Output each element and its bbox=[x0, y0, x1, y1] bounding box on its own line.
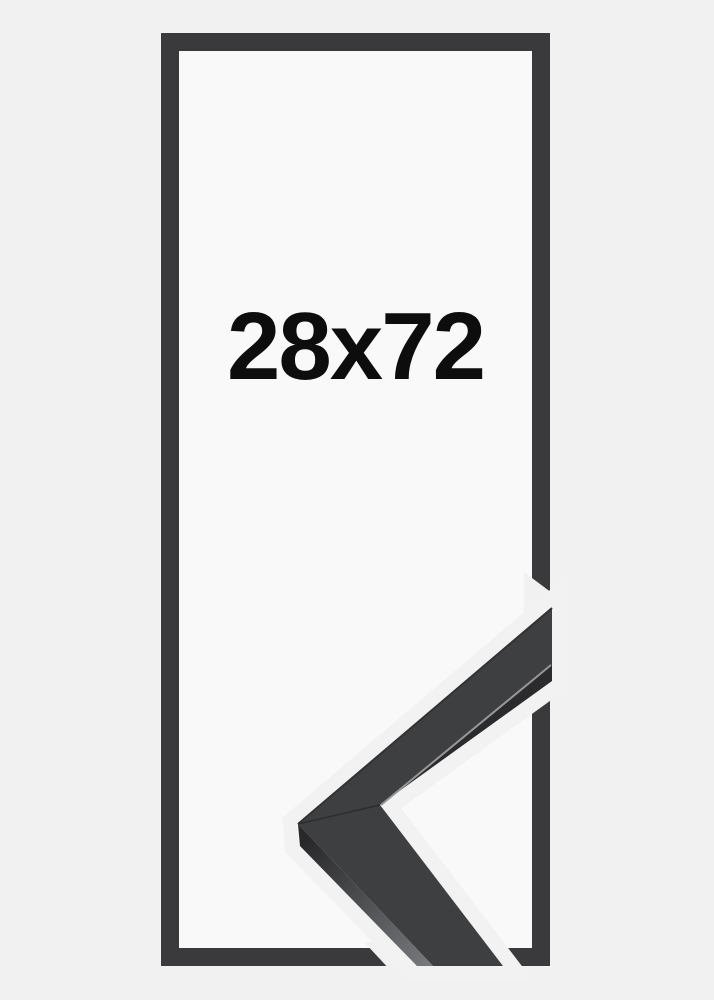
size-label: 28x72 bbox=[161, 294, 550, 399]
product-image: 28x72 bbox=[0, 0, 714, 1000]
frame-size-illustration bbox=[0, 0, 714, 1000]
